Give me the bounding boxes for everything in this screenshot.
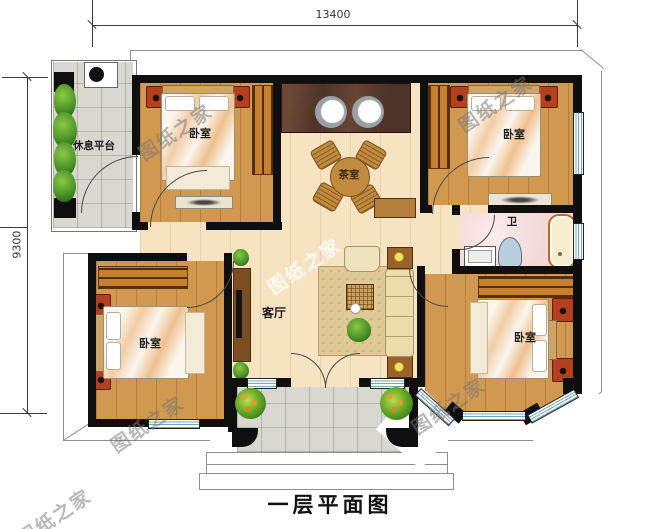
nightstand (552, 298, 574, 322)
window-bay-bottom (462, 411, 526, 421)
wardrobe-bedroom-br (478, 276, 575, 298)
living-plant-bottom (233, 362, 249, 379)
outline-miter-top-right (580, 49, 604, 69)
rest-platform-label: 休息平台 (56, 140, 132, 153)
armchair (344, 246, 380, 272)
wall-tea-bedroom-tr (420, 83, 428, 213)
wardrobe-bedroom-tr (428, 85, 450, 169)
lamp-dot (394, 252, 404, 262)
wall-living-bottom-c (359, 378, 370, 387)
wall-bedroom-tr-bottom-a (420, 205, 432, 213)
platform-plant-4 (53, 170, 76, 202)
window-bedroom-tr-right (573, 112, 584, 175)
platform-column-dot (89, 67, 104, 82)
dim-top-line (92, 25, 577, 26)
pillow (106, 312, 121, 340)
bathtub (548, 214, 576, 269)
wall-bedroom-tl-bottom-a (132, 222, 148, 230)
bathroom-sink (464, 246, 496, 267)
nightstand (538, 86, 558, 108)
outline-left (63, 253, 64, 441)
bedroom-tr-label: 卧室 (486, 128, 542, 141)
sofa (385, 269, 414, 357)
bed-side-throw (470, 302, 488, 374)
watermark: 图纸之家 (12, 482, 97, 529)
lounge-chair-cushion (357, 99, 382, 124)
lamp-dot (394, 362, 404, 372)
wall-bedroom-bl-top (88, 253, 187, 261)
outline-top (130, 50, 583, 51)
wall-bedroom-bl-left (88, 253, 96, 427)
bathtub-drain (558, 252, 562, 256)
bush-left (235, 388, 266, 419)
wall-living-bottom-a (224, 378, 247, 387)
plan-caption: 一层平面图 (205, 489, 455, 519)
tea-sideboard (374, 198, 416, 218)
wall-bedroom-tl-bottom-b (206, 222, 282, 230)
bedroom-bl-label: 卧室 (122, 337, 178, 350)
living-room-label: 客厅 (248, 306, 300, 320)
pillow (106, 342, 121, 370)
outline-miter-bottom-left (63, 424, 89, 441)
wall-living-bottom-d (403, 378, 425, 387)
wall-bath-bottom (452, 266, 573, 274)
window-bathroom-right (573, 223, 584, 260)
dim-left-label: 9300 (10, 218, 23, 272)
wall-bedroom-tr-bottom-b (488, 205, 573, 213)
bed-side-throw (185, 312, 205, 374)
dim-left-line (27, 77, 28, 413)
wall-living-bottom-b (275, 378, 291, 387)
dim-left-ext-bottom (0, 413, 47, 414)
living-plant-top (233, 249, 249, 266)
porch-step-3 (199, 473, 454, 490)
bathroom-toilet (498, 237, 522, 268)
tea-room-label: 茶室 (327, 169, 371, 182)
dim-left-ext-top (2, 77, 48, 78)
outline-right (601, 71, 602, 392)
teapot (350, 303, 361, 314)
dim-top-label: 13400 (293, 8, 373, 21)
bedroom-br-label: 卧室 (497, 331, 553, 344)
tv-set (236, 290, 242, 338)
rug-plant (347, 318, 371, 342)
lounge-chair-cushion (320, 99, 345, 124)
bathroom-label: 卫 (500, 216, 524, 229)
pillow (532, 340, 547, 372)
floor-plan: 休息平台 卧室 茶室 卧室 卫 卧室 (0, 0, 650, 529)
wall-bedroom-tl-tea (273, 83, 281, 230)
outline-left-top-stub (63, 253, 88, 254)
wardrobe-bedroom-bl (98, 266, 188, 289)
